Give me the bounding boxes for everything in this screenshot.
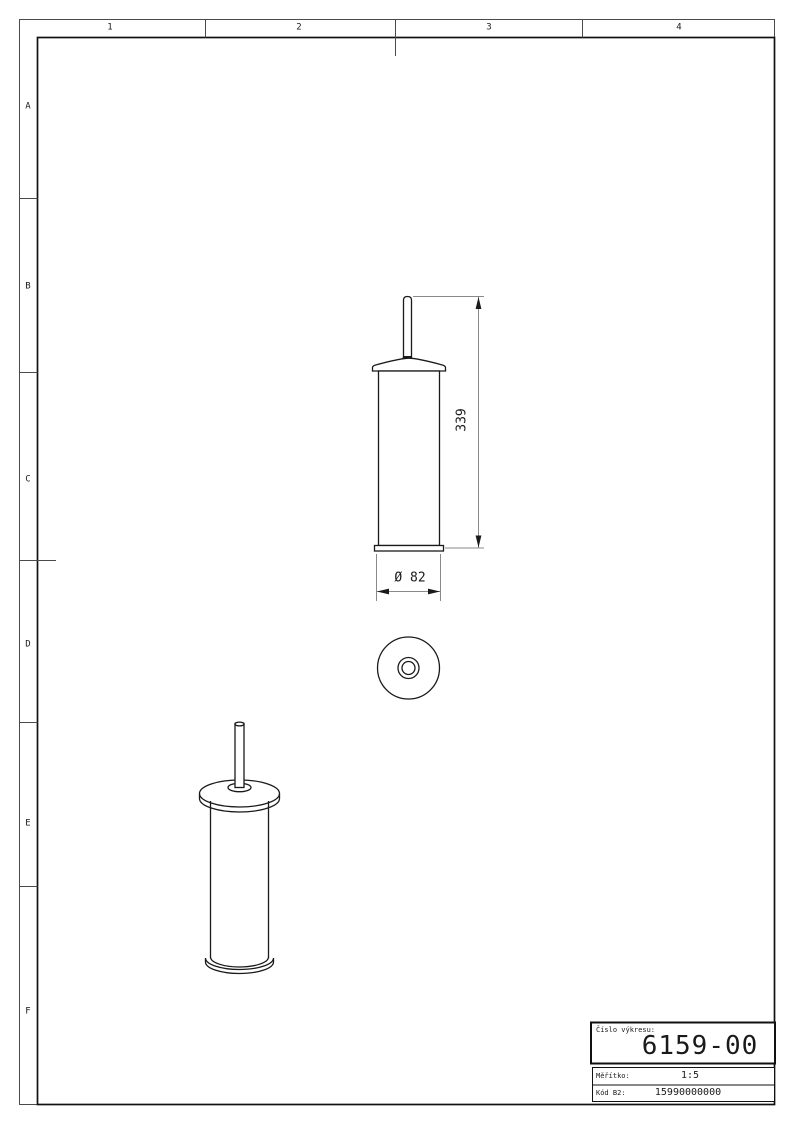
zone-column-label-2: 2 <box>296 24 301 33</box>
scale-value: 1:5 <box>681 1071 699 1081</box>
zone-row-label-d: D <box>25 641 30 650</box>
sheet-frame <box>20 20 775 1105</box>
diameter-dimension-text: Ø 82 <box>394 572 425 585</box>
cylinder-body <box>379 371 440 546</box>
code-value: 15990000000 <box>655 1088 721 1098</box>
body-outline-circle <box>378 637 440 699</box>
drawing-canvas <box>0 0 794 1123</box>
arrow-down <box>476 536 482 548</box>
iso-base-rim-bottom <box>206 962 274 974</box>
iso-handle-cap <box>235 722 244 726</box>
height-dimension-text: 339 <box>456 408 469 431</box>
base-ring <box>375 546 444 552</box>
zone-column-label-1: 1 <box>107 24 112 33</box>
outer-border <box>20 20 775 1105</box>
top-view <box>378 637 440 699</box>
zone-row-label-e: E <box>25 820 30 829</box>
iso-handle-rod <box>235 724 244 788</box>
zone-row-label-a: A <box>25 103 30 112</box>
handle-inner-circle <box>402 662 415 675</box>
arrow-left <box>377 589 389 595</box>
zone-row-label-f: F <box>25 1008 30 1017</box>
lid-dome <box>373 358 446 371</box>
isometric-view <box>200 722 280 973</box>
front-view <box>373 297 446 552</box>
code-label: Kód B2: <box>596 1090 626 1097</box>
drawing-sheet: 1 2 3 4 A B C D E F 339 Ø 82 Číslo výkre… <box>0 0 794 1123</box>
scale-label: Měřítko: <box>596 1073 630 1080</box>
drawing-number-value: 6159-00 <box>642 1033 759 1059</box>
handle-outer-circle <box>398 658 419 679</box>
arrow-right <box>428 589 440 595</box>
iso-base-rim-top <box>206 958 274 970</box>
zone-column-label-4: 4 <box>676 24 681 33</box>
zone-row-label-b: B <box>25 283 30 292</box>
arrow-up <box>476 297 482 309</box>
zone-row-label-c: C <box>25 476 30 485</box>
zone-column-label-3: 3 <box>486 24 491 33</box>
iso-body-bottom <box>211 957 269 967</box>
handle-rod <box>404 297 412 358</box>
